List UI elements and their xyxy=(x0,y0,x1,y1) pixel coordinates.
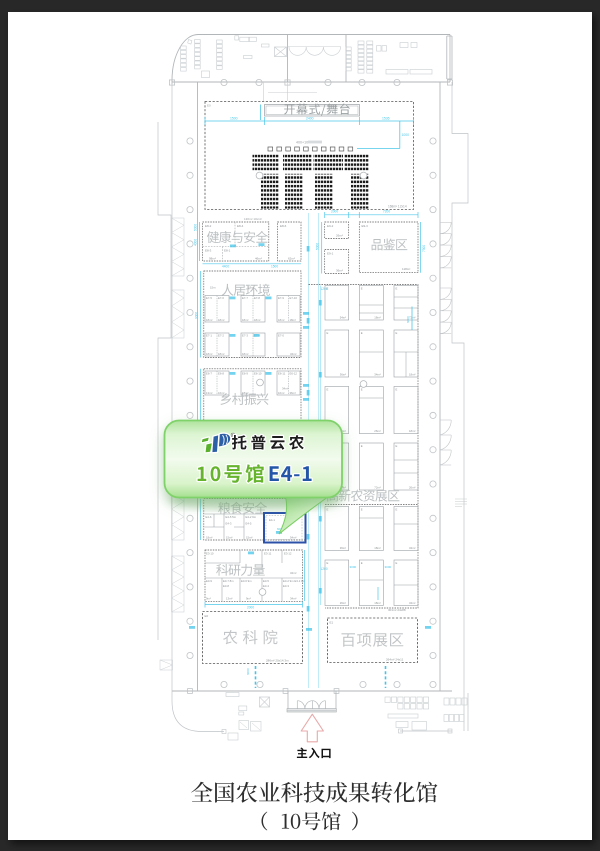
svg-text:E: E xyxy=(327,561,329,565)
svg-text:E3-5: E3-5 xyxy=(263,579,269,583)
svg-text:26m²: 26m² xyxy=(340,601,346,605)
svg-text:18m²: 18m² xyxy=(242,391,248,395)
svg-text:7200: 7200 xyxy=(383,210,390,214)
svg-text:E8-4: E8-4 xyxy=(237,224,244,228)
svg-text:E9-3: E9-3 xyxy=(362,224,369,228)
svg-text:18m²: 18m² xyxy=(374,546,380,550)
svg-text:E6-11: E6-11 xyxy=(278,372,286,376)
svg-text:E7-6: E7-6 xyxy=(218,296,224,300)
svg-text:286m² 20x14.3m: 286m² 20x14.3m xyxy=(266,659,289,663)
svg-text:301m² 24x88: 301m² 24x88 xyxy=(388,608,406,612)
svg-text:E7-5: E7-5 xyxy=(206,296,212,300)
svg-text:E0: E0 xyxy=(207,104,211,108)
svg-text:34m²: 34m² xyxy=(374,373,380,377)
svg-text:E4-2 9m: E4-2 9m xyxy=(246,515,257,519)
svg-text:18m²: 18m² xyxy=(206,318,212,322)
svg-text:E3-2 9m E3-1 9m: E3-2 9m E3-1 9m xyxy=(283,579,306,583)
svg-text:34m²: 34m² xyxy=(409,601,415,605)
svg-text:E6-10: E6-10 xyxy=(254,372,262,376)
svg-text:34m²: 34m² xyxy=(290,352,296,356)
svg-text:9m²: 9m² xyxy=(246,597,251,601)
svg-text:7300: 7300 xyxy=(422,245,426,252)
svg-text:E: E xyxy=(327,331,329,335)
svg-text:E3-4: E3-4 xyxy=(263,584,269,588)
svg-text:130m² 10x13: 130m² 10x13 xyxy=(244,217,262,221)
svg-text:E: E xyxy=(396,561,398,565)
svg-text:E3-12: E3-12 xyxy=(284,552,292,556)
svg-text:5000: 5000 xyxy=(194,224,198,231)
svg-text:2400: 2400 xyxy=(306,117,314,121)
svg-text:E7-9: E7-9 xyxy=(278,296,284,300)
svg-text:34m²: 34m² xyxy=(290,597,296,601)
svg-text:2000: 2000 xyxy=(331,210,338,214)
svg-text:E7-2: E7-2 xyxy=(218,334,224,338)
svg-text:E3-10: E3-10 xyxy=(206,552,214,556)
svg-text:E7-10: E7-10 xyxy=(290,296,298,300)
svg-text:54m²: 54m² xyxy=(340,316,346,320)
svg-text:E4-3: E4-3 xyxy=(226,522,232,526)
svg-text:E: E xyxy=(327,287,329,291)
svg-text:26m²: 26m² xyxy=(336,234,343,238)
svg-text:E3-7 8m: E3-7 8m xyxy=(223,579,234,583)
svg-text:E8-1: E8-1 xyxy=(224,249,231,253)
svg-text:1200: 1200 xyxy=(321,567,328,571)
svg-text:168m² 12x14: 168m² 12x14 xyxy=(388,205,407,209)
svg-text:54m²: 54m² xyxy=(290,536,296,540)
svg-text:3000: 3000 xyxy=(385,565,392,569)
svg-text:E6-9: E6-9 xyxy=(242,372,248,376)
svg-text:E: E xyxy=(327,388,329,392)
svg-text:13m²: 13m² xyxy=(206,391,212,395)
svg-text:E: E xyxy=(396,508,398,512)
svg-text:E0: E0 xyxy=(205,614,209,618)
svg-text:18m²: 18m² xyxy=(218,352,224,356)
svg-text:E9-2: E9-2 xyxy=(327,224,334,228)
svg-text:E: E xyxy=(361,561,363,565)
svg-text:6000: 6000 xyxy=(246,668,250,675)
svg-text:18m²: 18m² xyxy=(409,429,415,433)
svg-text:26m²: 26m² xyxy=(409,486,415,490)
svg-text:E4-6: E4-6 xyxy=(206,515,212,519)
svg-text:18m²: 18m² xyxy=(290,318,296,322)
svg-text:36m²: 36m² xyxy=(340,373,346,377)
svg-text:E3-6 9m: E3-6 9m xyxy=(241,579,252,583)
svg-text:9000: 9000 xyxy=(195,312,199,319)
svg-text:E8-2: E8-2 xyxy=(205,224,212,228)
svg-text:18m²: 18m² xyxy=(254,318,260,322)
svg-text:E: E xyxy=(327,508,329,512)
svg-text:E1: E1 xyxy=(330,621,334,625)
svg-text:18m²: 18m² xyxy=(218,318,224,322)
svg-text:2000: 2000 xyxy=(247,605,254,609)
svg-text:4000: 4000 xyxy=(194,239,198,246)
svg-text:36m²: 36m² xyxy=(340,546,346,550)
svg-text:18m: 18m xyxy=(248,286,254,290)
svg-text:E3-8: E3-8 xyxy=(223,584,229,588)
svg-text:15m: 15m xyxy=(210,286,216,290)
svg-text:26m²: 26m² xyxy=(374,429,380,433)
svg-text:E: E xyxy=(396,287,398,291)
svg-text:18m²: 18m² xyxy=(206,352,212,356)
svg-text:E4-5 5m: E4-5 5m xyxy=(226,515,237,519)
svg-text:E: E xyxy=(396,444,398,448)
svg-text:264m² 24x11: 264m² 24x11 xyxy=(386,658,404,662)
svg-text:18m²: 18m² xyxy=(278,318,284,322)
svg-text:34m²: 34m² xyxy=(409,546,415,550)
svg-text:18m²: 18m² xyxy=(409,373,415,377)
svg-text:4400: 4400 xyxy=(222,264,229,268)
svg-text:1536: 1536 xyxy=(382,117,390,121)
svg-text:E7-0: E7-0 xyxy=(278,334,284,338)
svg-text:98m²: 98m² xyxy=(209,257,216,261)
svg-text:E: E xyxy=(361,331,363,335)
svg-text:E: E xyxy=(361,444,363,448)
svg-text:E8-3: E8-3 xyxy=(205,249,212,253)
svg-text:16m²: 16m² xyxy=(278,391,284,395)
svg-text:1500: 1500 xyxy=(271,264,278,268)
svg-text:18m²: 18m² xyxy=(374,316,380,320)
svg-text:E8-6: E8-6 xyxy=(280,224,287,228)
svg-text:E6-7: E6-7 xyxy=(206,372,212,376)
svg-text:E9-1: E9-1 xyxy=(327,252,334,256)
svg-text:18m²: 18m² xyxy=(242,318,248,322)
svg-text:E3-9: E3-9 xyxy=(206,579,212,583)
svg-text:1500: 1500 xyxy=(230,117,238,121)
svg-text:E: E xyxy=(361,508,363,512)
svg-text:5000: 5000 xyxy=(316,243,320,250)
svg-text:400+10: 400+10 xyxy=(296,141,308,145)
svg-text:E7-3: E7-3 xyxy=(242,334,248,338)
svg-text:18m²: 18m² xyxy=(242,352,248,356)
svg-text:E: E xyxy=(361,388,363,392)
svg-text:6000: 6000 xyxy=(406,316,410,323)
svg-text:E6-8: E6-8 xyxy=(218,372,224,376)
svg-text:36m²: 36m² xyxy=(336,269,343,273)
svg-text:34m²: 34m² xyxy=(282,387,288,391)
svg-text:46m²: 46m² xyxy=(255,257,262,261)
svg-text:62m²: 62m² xyxy=(288,257,295,261)
svg-text:34m²: 34m² xyxy=(290,571,296,575)
svg-text:18m²: 18m² xyxy=(206,536,212,540)
svg-text:1000: 1000 xyxy=(402,133,410,137)
svg-text:E3-11: E3-11 xyxy=(264,552,272,556)
svg-text:16m²: 16m² xyxy=(218,391,224,395)
svg-text:13m²: 13m² xyxy=(226,597,232,601)
svg-text:118m²: 118m² xyxy=(402,267,410,271)
svg-text:E4-5: E4-5 xyxy=(246,522,252,526)
svg-text:18m²: 18m² xyxy=(374,601,380,605)
svg-text:15m²: 15m² xyxy=(226,536,232,540)
svg-text:E7-8: E7-8 xyxy=(254,296,260,300)
svg-text:E4-1: E4-1 xyxy=(269,518,275,522)
svg-text:E: E xyxy=(396,331,398,335)
svg-text:E7-7: E7-7 xyxy=(242,296,248,300)
svg-text:72m²: 72m² xyxy=(374,486,380,490)
svg-text:36m²: 36m² xyxy=(290,391,296,395)
svg-text:15m²: 15m² xyxy=(246,536,252,540)
svg-text:E: E xyxy=(396,388,398,392)
svg-text:9m²: 9m² xyxy=(206,597,211,601)
svg-text:E: E xyxy=(361,287,363,291)
svg-text:E3-3: E3-3 xyxy=(283,584,289,588)
svg-text:3000: 3000 xyxy=(350,565,357,569)
svg-text:E7-1: E7-1 xyxy=(206,334,212,338)
svg-text:E6-12: E6-12 xyxy=(290,372,298,376)
